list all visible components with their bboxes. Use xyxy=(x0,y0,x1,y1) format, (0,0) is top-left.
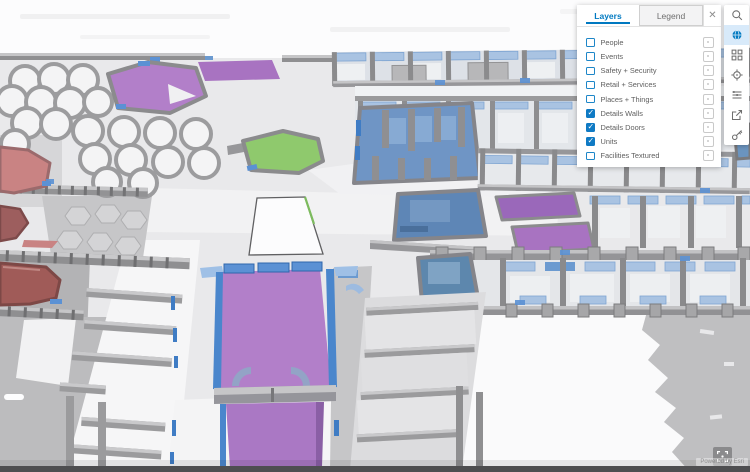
layer-label: Retail + Services xyxy=(601,80,704,89)
layer-label: Facilities Textured xyxy=(601,151,704,160)
layer-options-icon[interactable] xyxy=(703,79,714,90)
tab-legend[interactable]: Legend xyxy=(639,5,703,26)
patio-hex xyxy=(42,196,152,262)
layer-row: Safety + Security xyxy=(586,64,714,78)
share-button[interactable] xyxy=(724,105,749,125)
credentials-button[interactable] xyxy=(724,125,749,145)
layers-widget-button[interactable] xyxy=(724,25,749,45)
layers-panel: Layers Legend ✕ People Events Safety + S… xyxy=(577,5,721,167)
layer-row: Events xyxy=(586,50,714,64)
layer-label: Safety + Security xyxy=(601,66,704,75)
key-icon xyxy=(731,129,743,141)
layer-row: Details Walls xyxy=(586,106,714,120)
layer-options-icon[interactable] xyxy=(703,37,714,48)
layer-checkbox[interactable] xyxy=(586,67,595,76)
layer-label: Details Walls xyxy=(601,109,704,118)
layer-label: People xyxy=(601,38,704,47)
layer-checkbox[interactable] xyxy=(586,52,595,61)
room-steel-blue[interactable] xyxy=(394,190,486,240)
layer-options-icon[interactable] xyxy=(703,51,714,62)
layer-label: Details Doors xyxy=(601,123,704,132)
globe-icon xyxy=(731,29,743,41)
layer-options-icon[interactable] xyxy=(703,150,714,161)
layer-row: Facilities Textured xyxy=(586,149,714,163)
basemap-grid-icon xyxy=(731,49,743,61)
basemap-button[interactable] xyxy=(724,45,749,65)
unit-purple-a[interactable] xyxy=(496,193,580,220)
levels-button[interactable] xyxy=(724,85,749,105)
layer-checkbox[interactable] xyxy=(586,123,595,132)
layer-checkbox[interactable] xyxy=(586,95,595,104)
app-window: Layers Legend ✕ People Events Safety + S… xyxy=(0,0,750,472)
layer-checkbox[interactable] xyxy=(586,152,595,161)
layer-row: Units xyxy=(586,135,714,149)
export-icon xyxy=(731,109,743,121)
layer-options-icon[interactable] xyxy=(703,94,714,105)
layer-options-icon[interactable] xyxy=(703,136,714,147)
layer-options-icon[interactable] xyxy=(703,108,714,119)
search-button[interactable] xyxy=(724,5,749,25)
layer-checkbox[interactable] xyxy=(586,81,595,90)
locate-crosshair-icon xyxy=(731,69,743,81)
tab-layers[interactable]: Layers xyxy=(577,5,639,26)
room-blue-complex[interactable] xyxy=(354,103,480,183)
panel-tabbar: Layers Legend ✕ xyxy=(577,5,721,27)
search-icon xyxy=(731,9,743,21)
close-icon[interactable]: ✕ xyxy=(703,5,721,26)
bottom-edge xyxy=(0,466,750,472)
layer-checkbox[interactable] xyxy=(586,137,595,146)
layer-checkbox[interactable] xyxy=(586,109,595,118)
attribution-text: Powered by Esri xyxy=(696,458,748,466)
layer-row: Retail + Services xyxy=(586,78,714,92)
unit-purple-flat[interactable] xyxy=(198,60,280,81)
layer-list: People Events Safety + Security Retail +… xyxy=(577,27,721,167)
levels-icon xyxy=(731,89,743,101)
layer-options-icon[interactable] xyxy=(703,122,714,133)
layer-label: Units xyxy=(601,137,704,146)
layer-label: Events xyxy=(601,52,704,61)
layer-checkbox[interactable] xyxy=(586,38,595,47)
map-toolbar xyxy=(724,5,749,145)
layer-label: Places + Things xyxy=(601,95,704,104)
layer-row: Places + Things xyxy=(586,92,714,106)
layer-row: People xyxy=(586,35,714,49)
layer-options-icon[interactable] xyxy=(703,65,714,76)
layer-row: Details Doors xyxy=(586,120,714,134)
locate-button[interactable] xyxy=(724,65,749,85)
